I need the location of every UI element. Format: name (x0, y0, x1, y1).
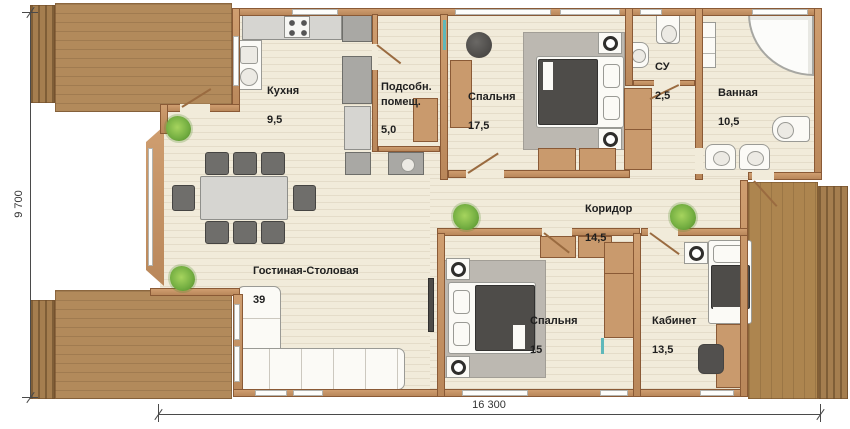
dining-table (200, 176, 288, 220)
window-south-bedroom2 (462, 390, 528, 396)
bed-blanket (475, 285, 535, 351)
window-south-living-b (293, 390, 323, 396)
room-label-living: Гостиная-Столовая 39 (253, 250, 359, 321)
bedroom2-dresser (540, 236, 576, 258)
dining-chair (172, 185, 195, 211)
window-south-living-a (255, 390, 287, 396)
lamp-icon (689, 246, 704, 261)
dining-chair (293, 185, 316, 211)
kitchen-appliance (345, 152, 371, 175)
room-area: 39 (253, 293, 359, 307)
window-west-living-a (234, 304, 240, 340)
room-name: Кухня (267, 84, 299, 98)
bay-window-glass (148, 148, 153, 266)
bathroom-sink-icon (739, 144, 770, 170)
nightstand-with-lamp (598, 32, 622, 54)
nightstand-with-lamp (446, 356, 470, 378)
room-area: 9,5 (267, 113, 299, 127)
room-label-study: Кабинет 13,5 (652, 300, 697, 371)
plant-icon (170, 266, 195, 291)
entry-steps-top-left (30, 5, 55, 103)
beanbag-chair (466, 32, 492, 58)
room-label-kitchen: Кухня 9,5 (267, 70, 299, 141)
room-label-corridor: Коридор 14,5 (585, 188, 632, 259)
window-north-bathroom (752, 9, 808, 15)
dimension-height-label: 9 700 (13, 169, 25, 239)
bed-foot-cover (713, 307, 741, 320)
wall-bedroom2-study (633, 233, 641, 397)
lamp-icon (451, 262, 466, 277)
fridge (342, 14, 372, 42)
bay-window-wall (146, 126, 164, 286)
door-opening-deck-right (752, 172, 774, 180)
wc-toilet-icon (656, 12, 680, 44)
window-north-kitchen (292, 9, 338, 15)
stove-icon (284, 16, 310, 38)
nightstand-with-lamp (684, 242, 708, 264)
room-label-wc: СУ 2,5 (655, 46, 670, 117)
wall-southwest-step (150, 288, 240, 296)
window-west-kitchen (233, 36, 239, 86)
bedroom1-double-bed (536, 56, 624, 128)
corner-sofa-horizontal (237, 348, 405, 390)
bedroom1-dresser (538, 148, 576, 171)
room-name: Ванная (718, 86, 758, 100)
plant-icon (453, 204, 479, 230)
lamp-icon (603, 36, 618, 51)
bed-pillow (453, 322, 470, 346)
plant-icon (166, 116, 191, 141)
room-name: Кабинет (652, 314, 697, 328)
plant-icon (670, 204, 696, 230)
entry-steps-right (818, 186, 848, 399)
bed-sheet-fold (543, 62, 553, 90)
room-area: 17,5 (468, 119, 516, 133)
window-west-living-b (234, 346, 240, 382)
lamp-icon (603, 132, 618, 147)
window-north-bedroom1-b (560, 9, 620, 15)
room-name: Спальня (530, 314, 578, 328)
window-accent-bedroom1 (443, 20, 446, 50)
room-label-utility: Подсобн. помещ. 5,0 (381, 66, 432, 152)
dining-chair (261, 152, 285, 175)
bedroom1-dresser (579, 148, 616, 171)
room-area: 14,5 (585, 231, 632, 245)
bed-sheet-fold (513, 325, 525, 349)
deck-top-left (55, 3, 232, 112)
bathroom-sink-icon (705, 144, 736, 170)
room-area: 10,5 (718, 115, 758, 129)
room-area: 15 (530, 343, 578, 357)
entry-steps-bottom-left (30, 300, 55, 399)
kitchen-island-counter (342, 56, 372, 104)
dimension-line-left (30, 12, 31, 397)
room-area: 2,5 (655, 89, 670, 103)
dining-chair (205, 152, 229, 175)
nightstand-with-lamp (598, 128, 622, 150)
room-area: 5,0 (381, 123, 432, 137)
room-label-bedroom2: Спальня 15 (530, 300, 578, 371)
wall-kitchen-utility (372, 14, 378, 152)
room-name: СУ (655, 60, 670, 74)
window-north-bedroom1-a (455, 9, 551, 15)
door-opening-utility (372, 44, 378, 70)
kitchen-cabinet (344, 106, 371, 150)
corridor-wardrobe (624, 88, 652, 170)
door-opening-bathroom (695, 148, 703, 174)
room-name: Гостиная-Столовая (253, 264, 359, 278)
washing-machine-icon (388, 152, 424, 175)
floor-plan: Кухня 9,5 Подсобн. помещ. 5,0 Спальня 17… (0, 0, 850, 429)
nightstand-with-lamp (446, 258, 470, 280)
window-south-study-a (600, 390, 628, 396)
room-name: Подсобн. помещ. (381, 80, 432, 109)
room-area: 13,5 (652, 343, 697, 357)
lamp-icon (451, 360, 466, 375)
bedroom2-double-bed (448, 282, 536, 354)
wall-east-bottom (740, 180, 748, 397)
wall-tv-icon (428, 278, 434, 332)
dining-chair (233, 152, 257, 175)
bed-pillow (453, 290, 470, 314)
bathroom-toilet-icon (772, 116, 810, 142)
deck-bottom-left (55, 290, 232, 399)
window-accent-bedroom2 (601, 338, 604, 354)
wall-bedroom1-wc (625, 8, 633, 86)
bed-pillow (603, 64, 620, 88)
deck-right (748, 182, 818, 399)
bed-pillow (603, 96, 620, 120)
room-label-bedroom1: Спальня 17,5 (468, 76, 516, 147)
window-north-wc (640, 9, 662, 15)
window-south-study-b (700, 390, 734, 396)
dining-chair (205, 221, 229, 244)
dimension-line-bottom (158, 414, 820, 415)
dining-chair (233, 221, 257, 244)
desk-chair (698, 344, 724, 374)
room-name: Коридор (585, 202, 632, 216)
dining-chair (261, 221, 285, 244)
wall-living-bedroom2 (437, 233, 445, 397)
dimension-width-label: 16 300 (158, 399, 820, 411)
room-label-bathroom: Ванная 10,5 (718, 72, 758, 143)
wall-east-top (814, 8, 822, 180)
room-name: Спальня (468, 90, 516, 104)
